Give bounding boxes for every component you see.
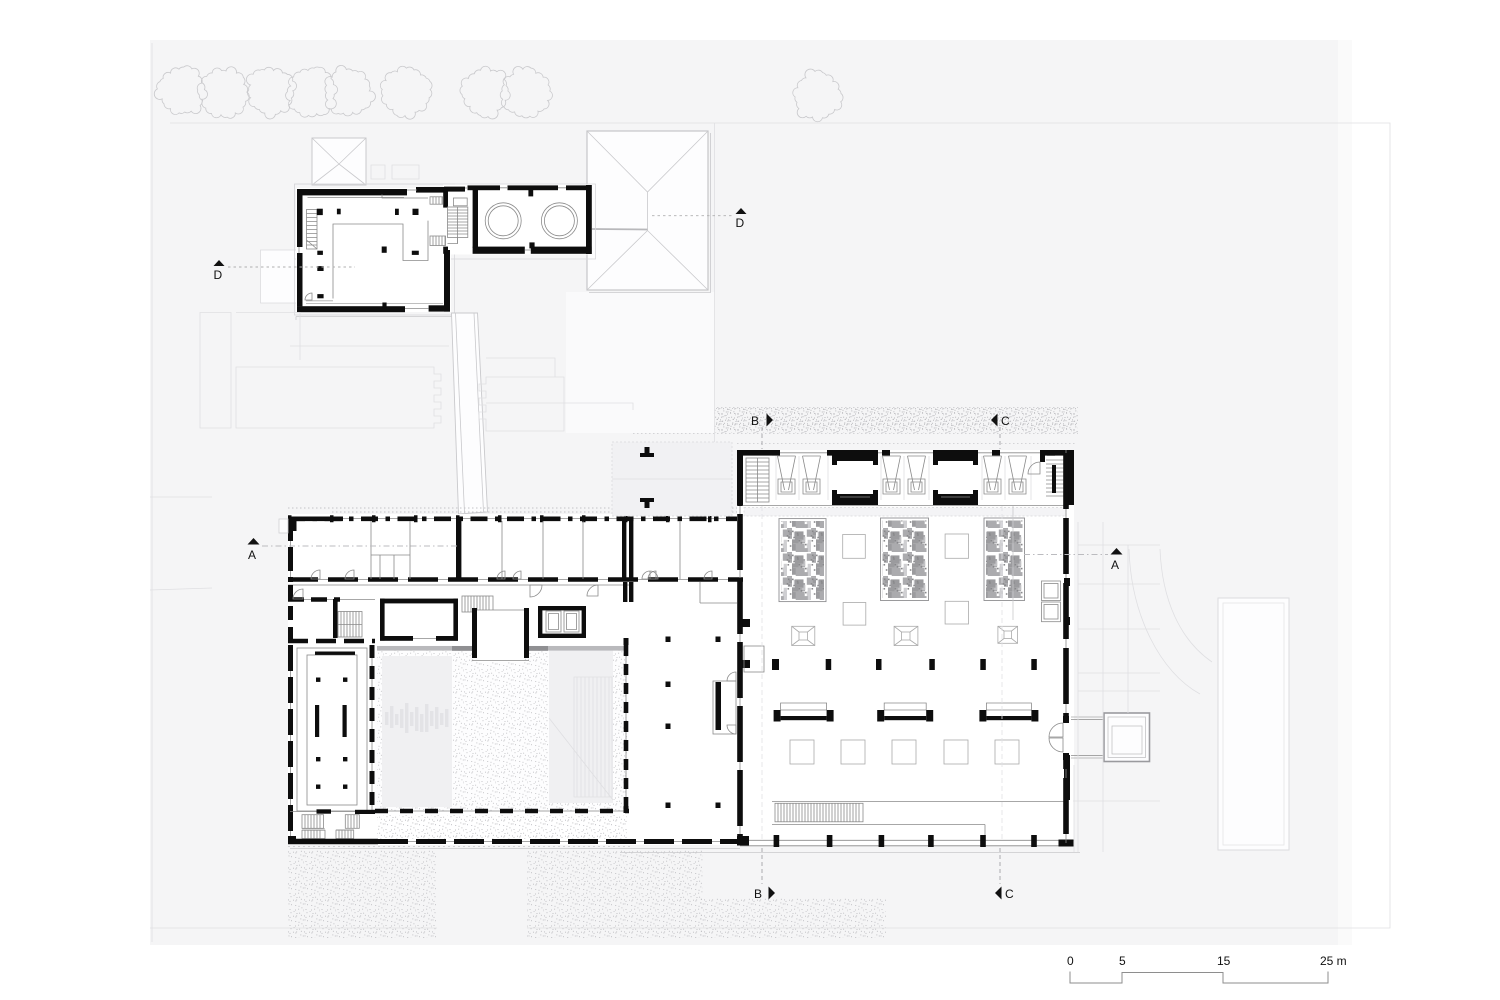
svg-text:D: D bbox=[736, 216, 745, 230]
svg-text:A: A bbox=[1111, 558, 1119, 572]
svg-text:B: B bbox=[751, 414, 759, 428]
svg-text:C: C bbox=[1001, 414, 1010, 428]
svg-text:0: 0 bbox=[1067, 954, 1074, 968]
svg-text:B: B bbox=[754, 887, 762, 901]
svg-text:C: C bbox=[1005, 887, 1014, 901]
svg-text:25 m: 25 m bbox=[1320, 954, 1347, 968]
svg-text:5: 5 bbox=[1119, 954, 1126, 968]
svg-text:A: A bbox=[248, 548, 256, 562]
svg-text:D: D bbox=[214, 268, 223, 282]
svg-text:15: 15 bbox=[1217, 954, 1231, 968]
